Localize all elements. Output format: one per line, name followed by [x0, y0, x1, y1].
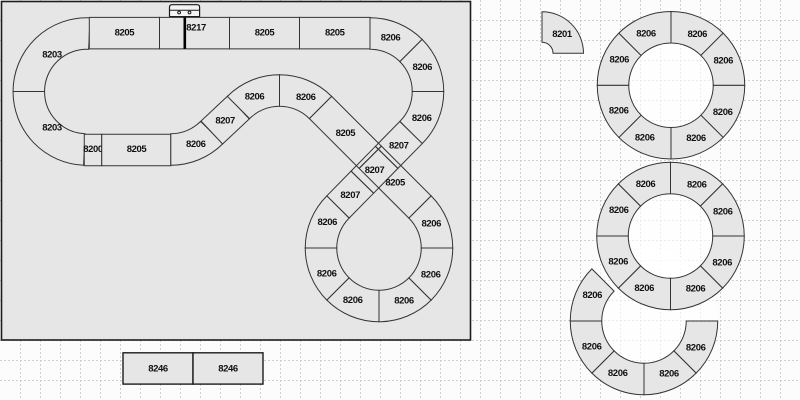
svg-text:8206: 8206 [412, 113, 432, 124]
svg-text:8205: 8205 [336, 128, 357, 139]
svg-text:8206: 8206 [394, 296, 414, 307]
svg-text:8206: 8206 [609, 106, 629, 117]
svg-text:8203: 8203 [42, 49, 62, 60]
svg-text:8206: 8206 [636, 179, 656, 190]
svg-text:8246: 8246 [218, 364, 238, 375]
svg-text:8206: 8206 [421, 270, 441, 281]
svg-text:8206: 8206 [413, 62, 433, 73]
svg-text:8206: 8206 [186, 139, 206, 150]
svg-text:8206: 8206 [634, 283, 654, 294]
svg-text:8206: 8206 [583, 290, 603, 301]
svg-text:8206: 8206 [686, 133, 706, 144]
svg-text:8207: 8207 [365, 165, 385, 176]
svg-text:8205: 8205 [115, 27, 136, 38]
svg-text:8206: 8206 [688, 29, 708, 40]
svg-text:8206: 8206 [422, 218, 442, 229]
svg-text:8206: 8206 [343, 295, 363, 306]
svg-text:8206: 8206 [317, 268, 337, 279]
svg-text:8206: 8206 [686, 343, 706, 354]
svg-text:8206: 8206 [318, 217, 338, 228]
svg-text:8206: 8206 [610, 54, 630, 65]
svg-text:8205: 8205 [127, 144, 148, 155]
svg-text:8206: 8206 [713, 206, 733, 217]
svg-text:8246: 8246 [148, 364, 168, 375]
svg-text:8206: 8206 [608, 368, 628, 379]
svg-text:8206: 8206 [381, 33, 401, 44]
svg-text:8206: 8206 [635, 132, 655, 143]
svg-text:8206: 8206 [714, 56, 734, 67]
svg-text:8206: 8206 [245, 92, 265, 103]
svg-text:8206: 8206 [686, 284, 706, 295]
svg-text:8207: 8207 [215, 115, 235, 126]
svg-text:8206: 8206 [609, 205, 629, 216]
svg-text:8203: 8203 [42, 122, 62, 133]
svg-text:8217: 8217 [186, 22, 206, 33]
svg-text:8206: 8206 [582, 341, 602, 352]
svg-text:8206: 8206 [608, 256, 628, 267]
svg-text:8206: 8206 [687, 180, 707, 191]
svg-text:8201: 8201 [552, 29, 573, 40]
svg-text:8205: 8205 [385, 178, 406, 189]
svg-text:8207: 8207 [340, 190, 360, 201]
svg-text:8206: 8206 [713, 107, 733, 118]
svg-text:8200: 8200 [83, 144, 103, 155]
svg-text:8206: 8206 [636, 28, 656, 39]
svg-text:8206: 8206 [712, 258, 732, 269]
svg-text:8205: 8205 [325, 27, 346, 38]
svg-text:8205: 8205 [255, 27, 276, 38]
svg-text:8207: 8207 [389, 140, 409, 151]
svg-text:8206: 8206 [659, 369, 679, 380]
svg-text:8206: 8206 [296, 92, 316, 103]
